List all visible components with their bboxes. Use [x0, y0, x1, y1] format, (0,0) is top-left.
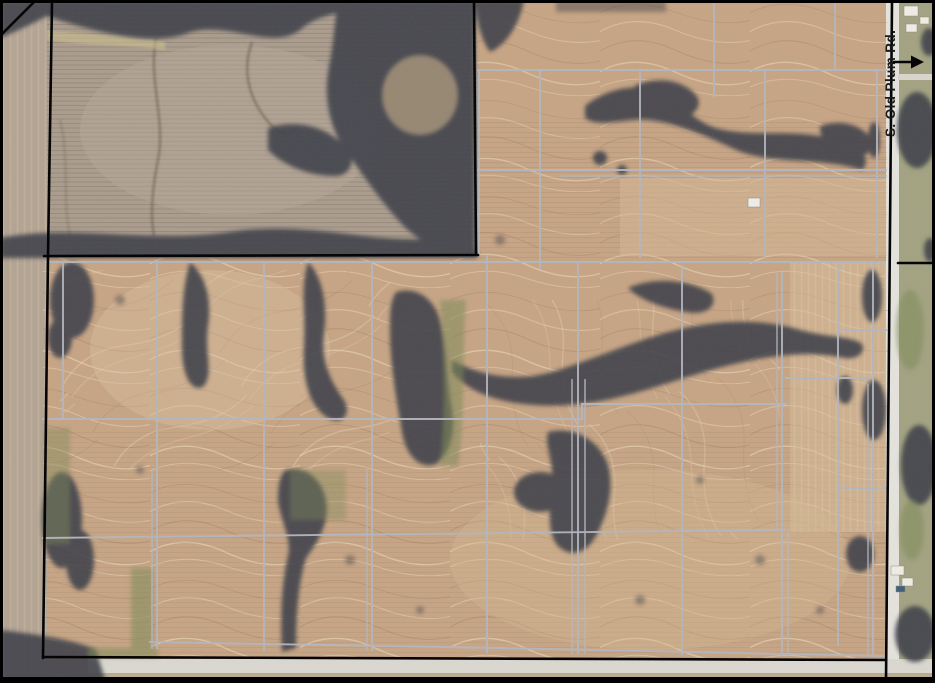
photo-grain [0, 0, 935, 683]
map-canvas: S. Old Plum Rd. [0, 0, 935, 683]
aerial-parcel-map: S. Old Plum Rd. [0, 0, 935, 683]
